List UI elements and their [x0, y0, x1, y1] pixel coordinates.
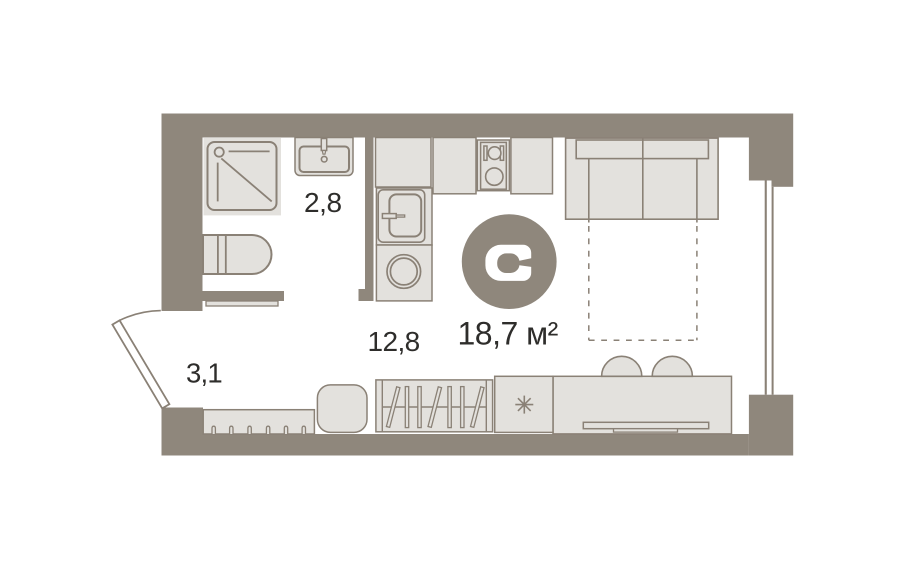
svg-text:2,8: 2,8 — [304, 187, 342, 218]
svg-text:12,8: 12,8 — [368, 326, 420, 357]
svg-text:18,7 м²: 18,7 м² — [458, 315, 559, 351]
svg-text:3,1: 3,1 — [186, 357, 222, 388]
